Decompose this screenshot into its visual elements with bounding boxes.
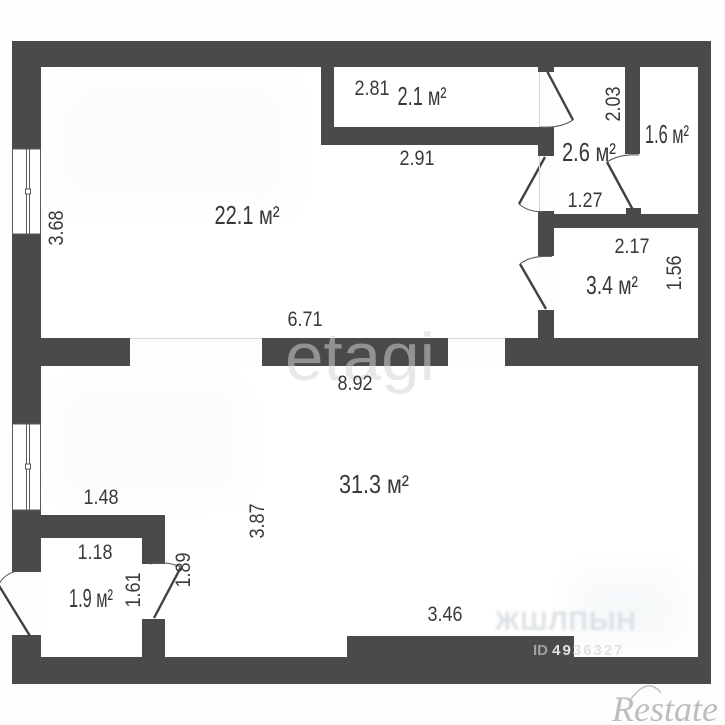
svg-text:3.46: 3.46 — [428, 602, 463, 626]
svg-text:1.18: 1.18 — [78, 540, 113, 564]
svg-text:1.9 м²: 1.9 м² — [69, 583, 113, 613]
svg-text:3.4 м²: 3.4 м² — [586, 270, 638, 300]
svg-text:1.48: 1.48 — [84, 485, 119, 509]
svg-text:6.71: 6.71 — [288, 307, 323, 331]
svg-text:1.61: 1.61 — [121, 573, 145, 608]
svg-text:3.87: 3.87 — [245, 504, 269, 539]
svg-text:ЖШЛПЫН: ЖШЛПЫН — [494, 606, 637, 636]
svg-text:1.89: 1.89 — [171, 553, 195, 588]
svg-text:ID 4936327: ID 4936327 — [533, 642, 625, 659]
svg-text:Restate: Restate — [611, 689, 718, 725]
svg-text:2.03: 2.03 — [601, 86, 625, 121]
svg-text:2.1 м²: 2.1 м² — [398, 81, 447, 111]
svg-text:1.56: 1.56 — [662, 255, 686, 290]
svg-text:2.81: 2.81 — [355, 76, 390, 100]
svg-text:2.6 м²: 2.6 м² — [562, 137, 616, 167]
svg-text:8.92: 8.92 — [338, 371, 373, 395]
svg-text:2.91: 2.91 — [400, 146, 435, 170]
svg-text:1.6 м²: 1.6 м² — [645, 119, 689, 149]
svg-text:1.27: 1.27 — [568, 188, 603, 212]
svg-text:31.3 м²: 31.3 м² — [339, 469, 409, 499]
svg-text:22.1 м²: 22.1 м² — [215, 200, 280, 230]
svg-text:2.17: 2.17 — [615, 234, 650, 258]
svg-text:3.68: 3.68 — [44, 210, 68, 245]
